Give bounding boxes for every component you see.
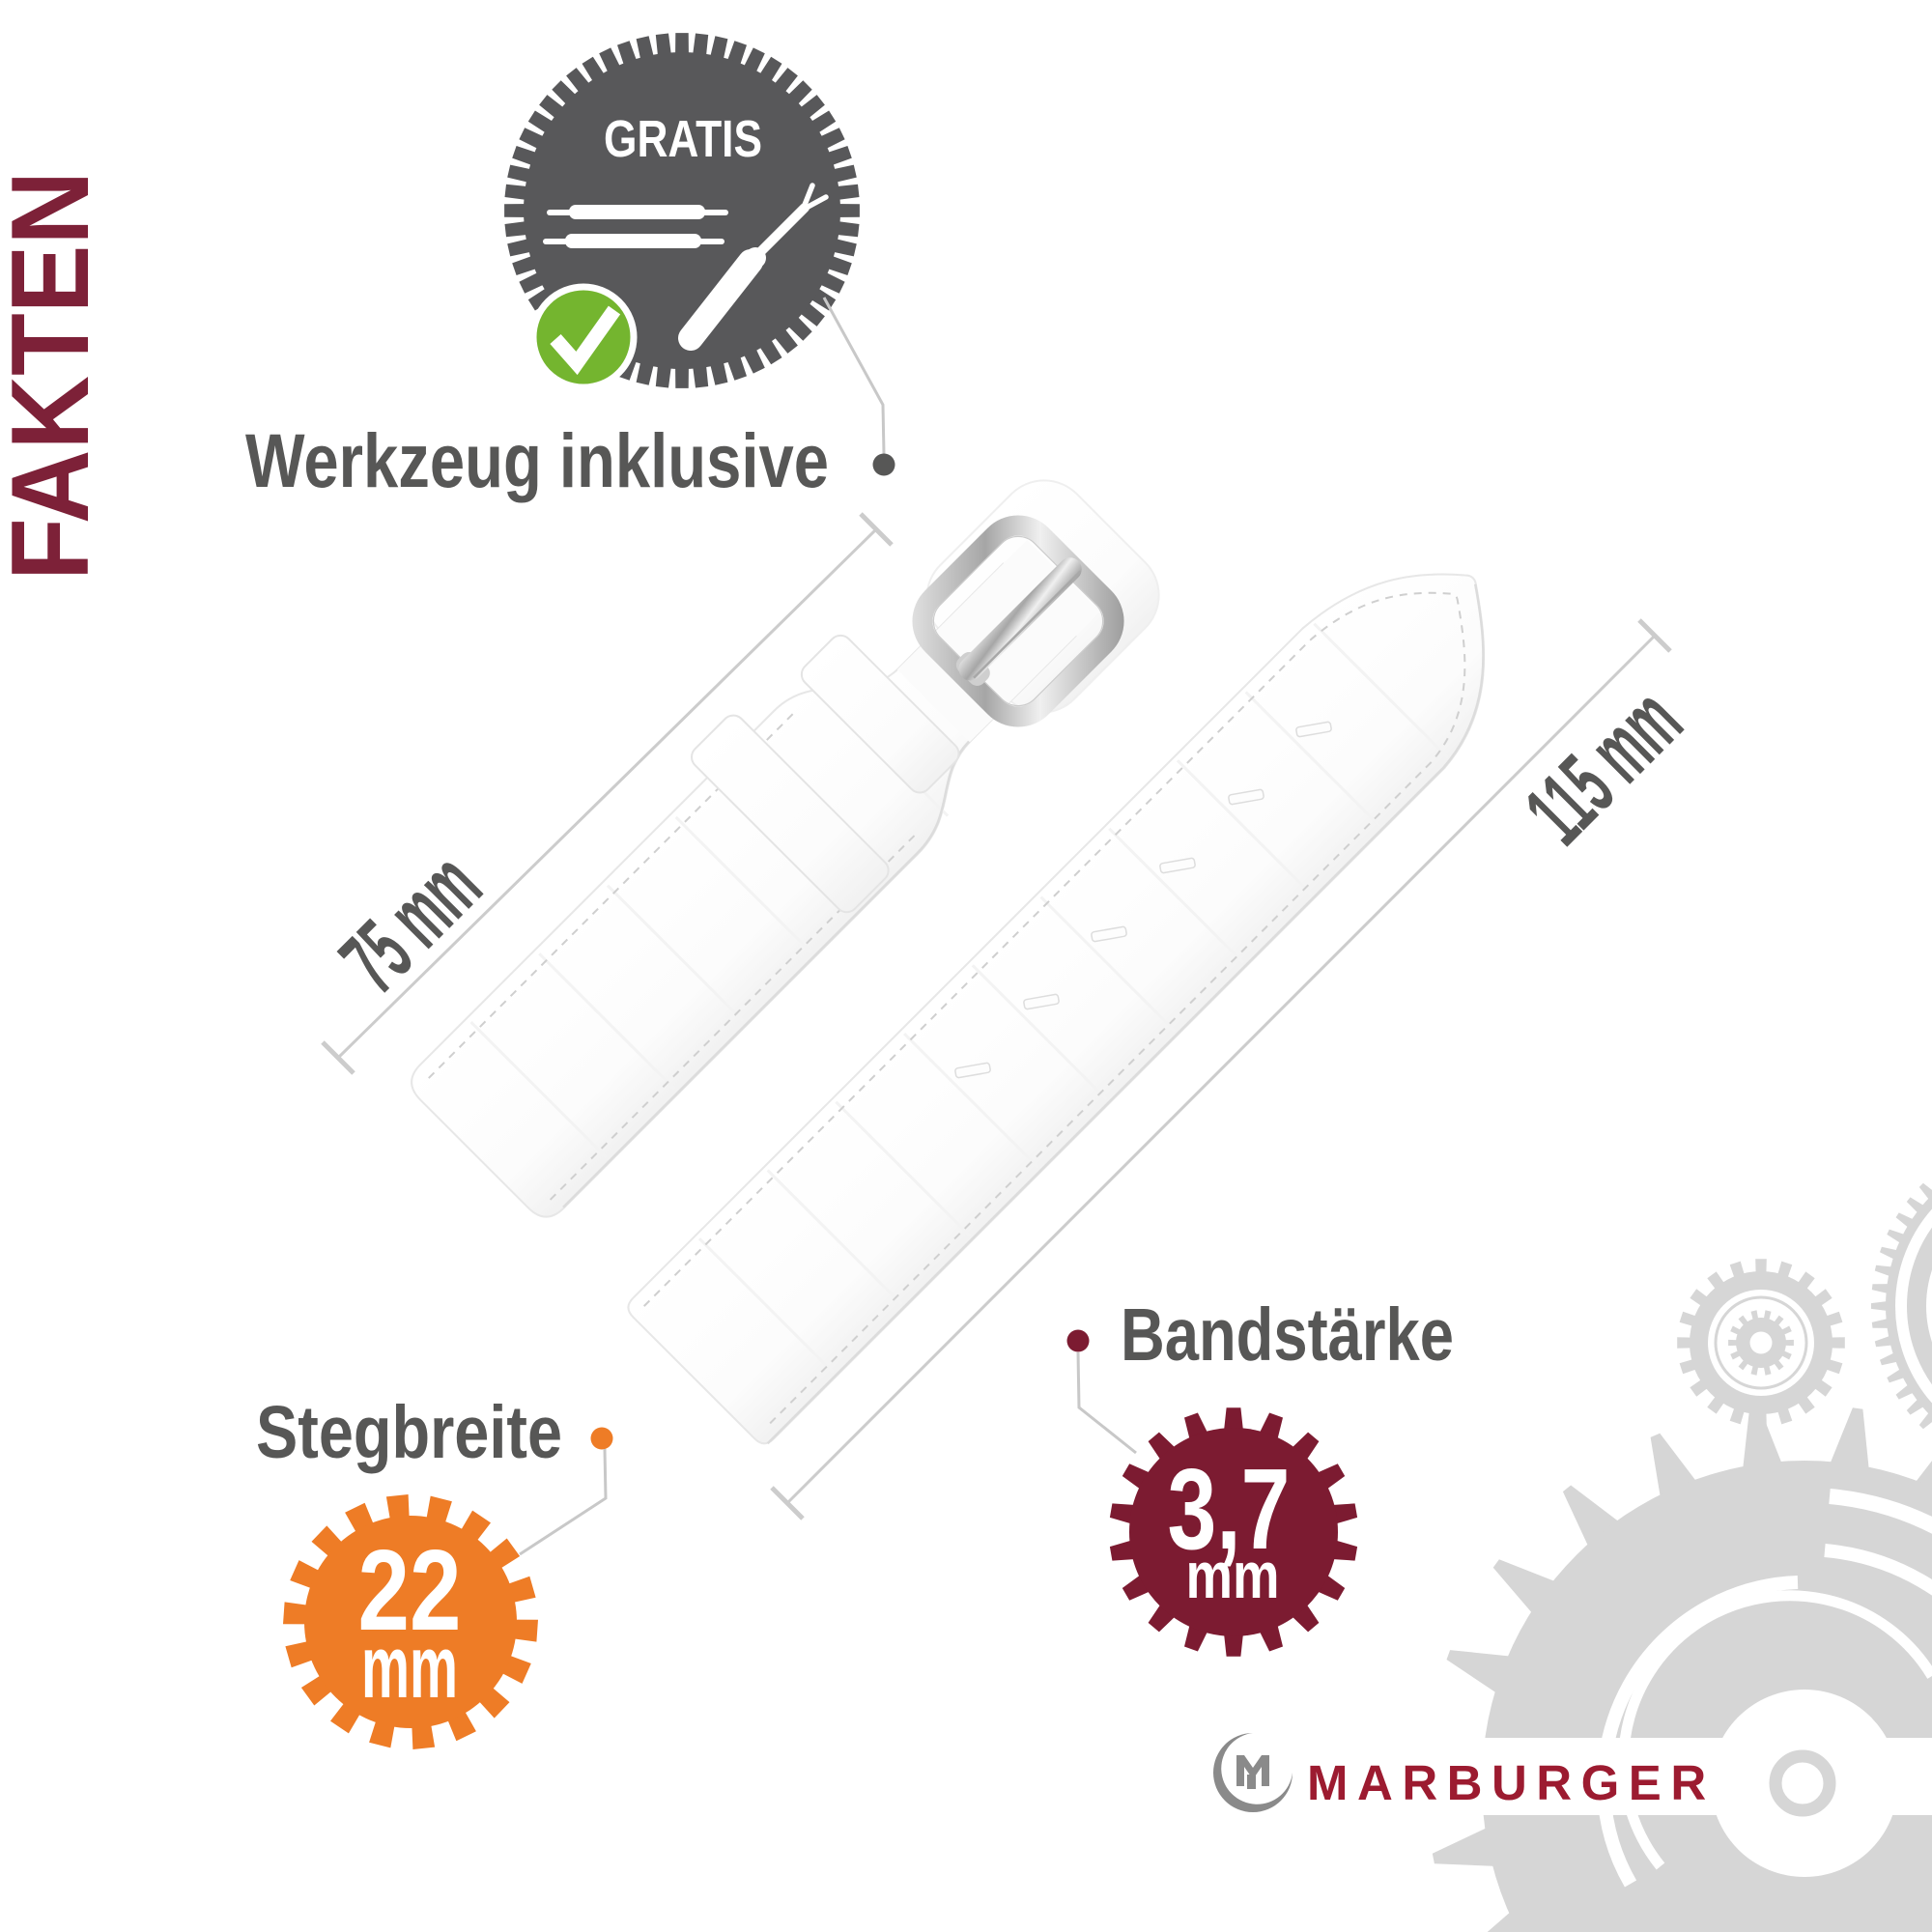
svg-text:MARBURGER: MARBURGER [1307, 1755, 1716, 1810]
svg-text:mm: mm [361, 1618, 458, 1717]
svg-text:Bandstärke: Bandstärke [1121, 1293, 1454, 1377]
svg-text:Stegbreite: Stegbreite [256, 1391, 562, 1474]
svg-text:FAKTEN: FAKTEN [0, 171, 112, 581]
svg-text:GRATIS: GRATIS [604, 110, 762, 168]
svg-text:mm: mm [1186, 1539, 1280, 1612]
svg-text:Werkzeug inklusive: Werkzeug inklusive [245, 417, 829, 503]
